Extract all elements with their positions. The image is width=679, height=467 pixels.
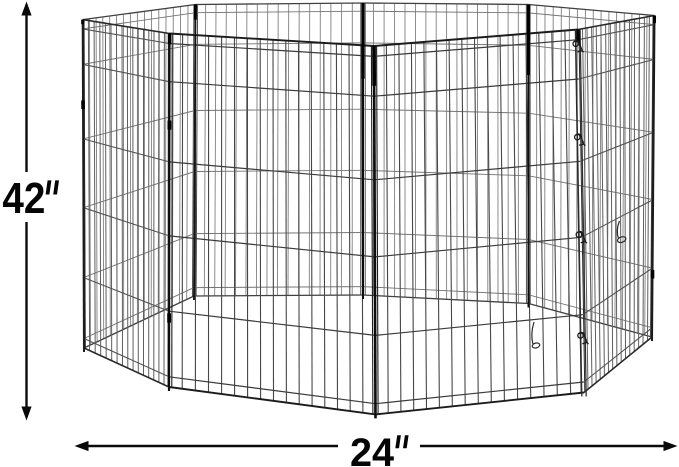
svg-text:42: 42 bbox=[2, 174, 45, 223]
svg-text:24: 24 bbox=[350, 431, 394, 467]
